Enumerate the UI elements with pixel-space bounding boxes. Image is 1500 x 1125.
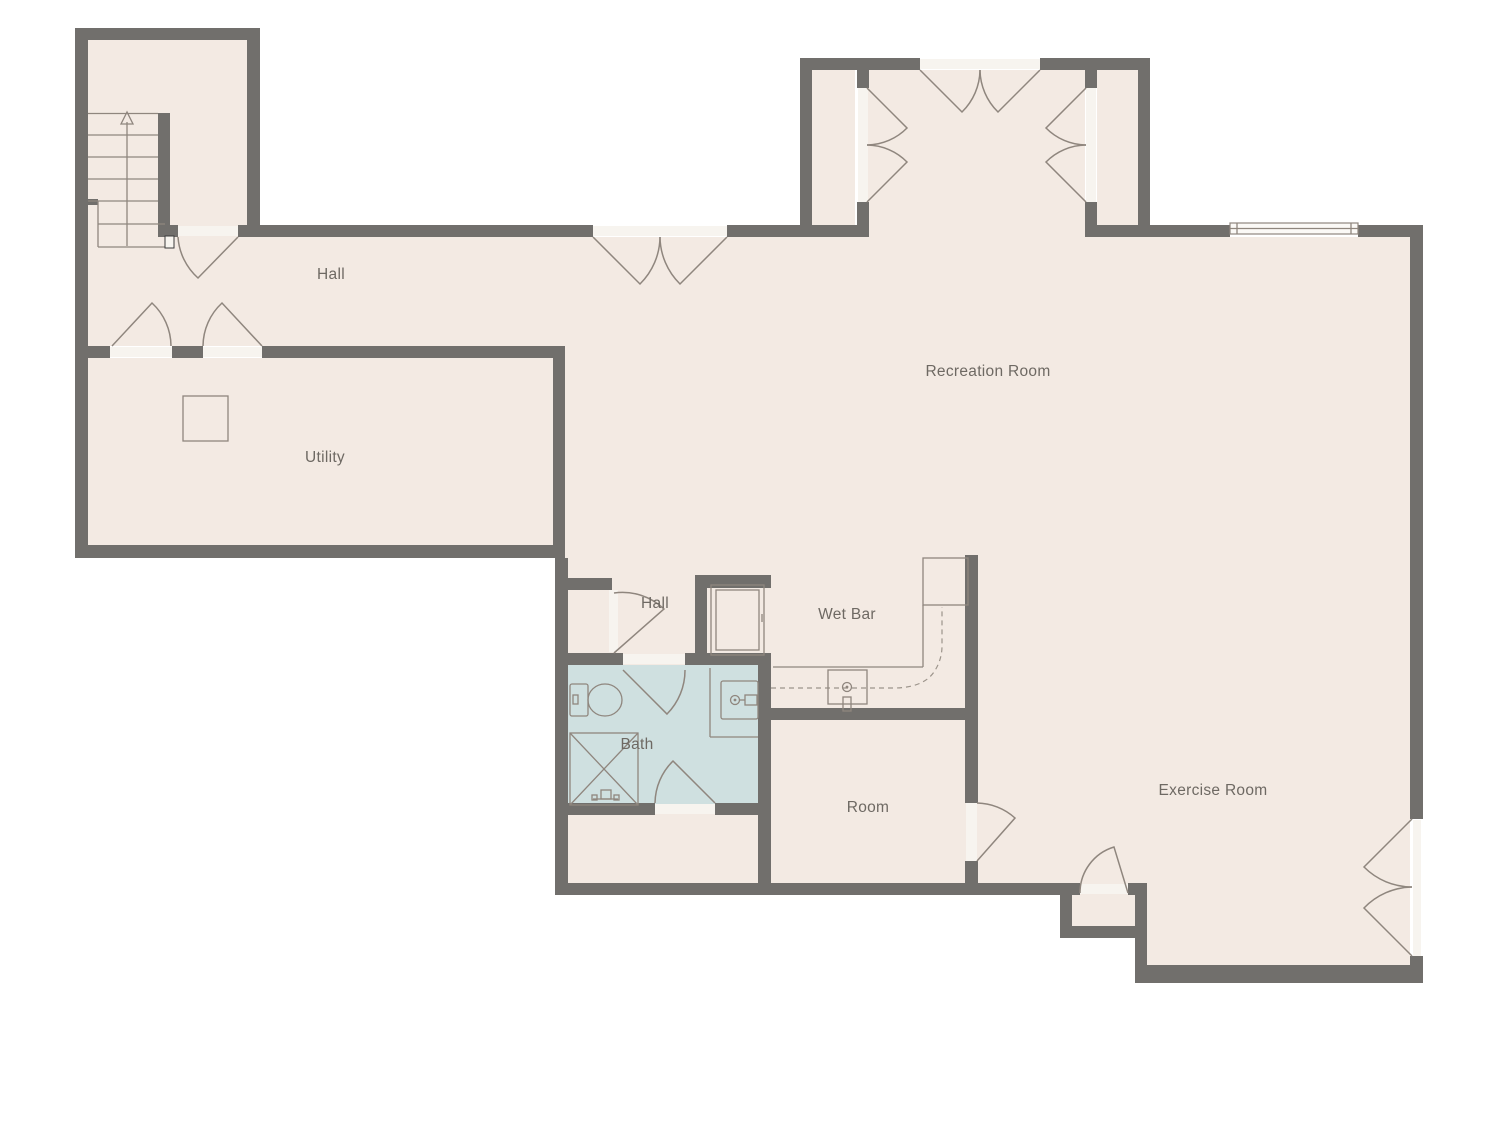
wall-segment-bottom <box>1128 883 1147 895</box>
wall-segment-mid-column <box>555 558 568 895</box>
wall-segment-bath-right <box>758 653 771 895</box>
wall-segment <box>1085 225 1150 237</box>
wall-segment-room-right <box>965 555 978 803</box>
room-label-hall-main: Hall <box>317 266 345 283</box>
wall-segment-stair-stub <box>80 199 98 205</box>
wall-segment-utility <box>262 346 565 358</box>
wall-segment <box>158 225 178 237</box>
wall-segment-alcove <box>800 58 920 70</box>
room-label-utility: Utility <box>305 449 345 466</box>
floor-plan: Hall Utility Recreation Room Hall Wet Ba… <box>0 0 1500 1125</box>
door-threshold-room <box>966 803 977 861</box>
wall-segment <box>238 225 247 237</box>
wall-segment-exercise-bottom <box>1135 965 1423 983</box>
wall-segment-hall-top <box>247 225 593 237</box>
wall-segment-alcove <box>1040 58 1150 70</box>
wall-segment-alcove <box>800 58 812 237</box>
wall-segment-stair <box>158 113 170 225</box>
wall-segment <box>75 28 88 558</box>
door-threshold-utility-right <box>203 347 262 357</box>
door-threshold-bath-bottom <box>655 804 715 814</box>
stairs-door-marker <box>165 236 174 248</box>
room-label-recreation: Recreation Room <box>925 363 1050 380</box>
wall-segment-utility <box>75 545 565 558</box>
door-leaf-hall-small <box>609 590 618 652</box>
door-threshold-utility-left <box>110 347 172 357</box>
door-leaf-closet-left <box>858 88 868 202</box>
room-floor-entry-alcove <box>867 70 1085 237</box>
wall-segment-utility <box>553 346 565 558</box>
wall-segment-room-top <box>770 708 977 720</box>
wall-segment-utility <box>75 346 110 358</box>
wall-segment-closet <box>857 202 869 237</box>
wall-segment-room-right <box>965 861 978 895</box>
wall-segment-closet <box>1085 70 1097 88</box>
door-threshold-stairs <box>178 226 238 236</box>
wall-segment-hall-small <box>568 578 612 590</box>
wall-segment <box>1150 225 1230 237</box>
room-label-exercise: Exercise Room <box>1159 782 1268 799</box>
room-floor-closet-right <box>1097 70 1138 225</box>
door-threshold-niche <box>1080 884 1128 894</box>
door-leaf-closet-right <box>1086 88 1096 202</box>
wall-segment <box>75 28 260 40</box>
room-floor-closet-left <box>812 70 855 225</box>
wall-segment-nook <box>695 575 771 588</box>
room-label-room: Room <box>847 799 890 816</box>
wall-segment-bottom <box>555 883 1080 895</box>
wall-segment-bath <box>568 653 623 665</box>
wall-segment-alcove <box>1138 58 1150 237</box>
door-threshold-bath-top <box>623 654 685 664</box>
wall-segment-niche <box>1060 926 1147 938</box>
door-threshold-entry-double <box>920 59 1040 69</box>
door-leaf-exercise-double <box>1413 820 1421 956</box>
floor-regions <box>88 40 1410 965</box>
wall-segment-closet <box>857 70 869 88</box>
room-floor-hall-main <box>88 237 1410 346</box>
floor-plan-canvas: Hall Utility Recreation Room Hall Wet Ba… <box>0 0 1500 1125</box>
room-label-bath: Bath <box>620 736 653 753</box>
wall-segment-utility <box>172 346 203 358</box>
wall-segment <box>247 28 260 237</box>
wall-segment-right-outer <box>1410 225 1423 819</box>
room-label-wet-bar: Wet Bar <box>818 606 876 623</box>
room-label-hall-small: Hall <box>641 595 669 612</box>
door-threshold-hall-double <box>593 226 727 236</box>
wall-segment-hall-top <box>727 225 857 237</box>
wall-segment-bath <box>715 803 770 815</box>
room-floor-exercise <box>1147 883 1410 965</box>
window <box>1230 223 1358 234</box>
